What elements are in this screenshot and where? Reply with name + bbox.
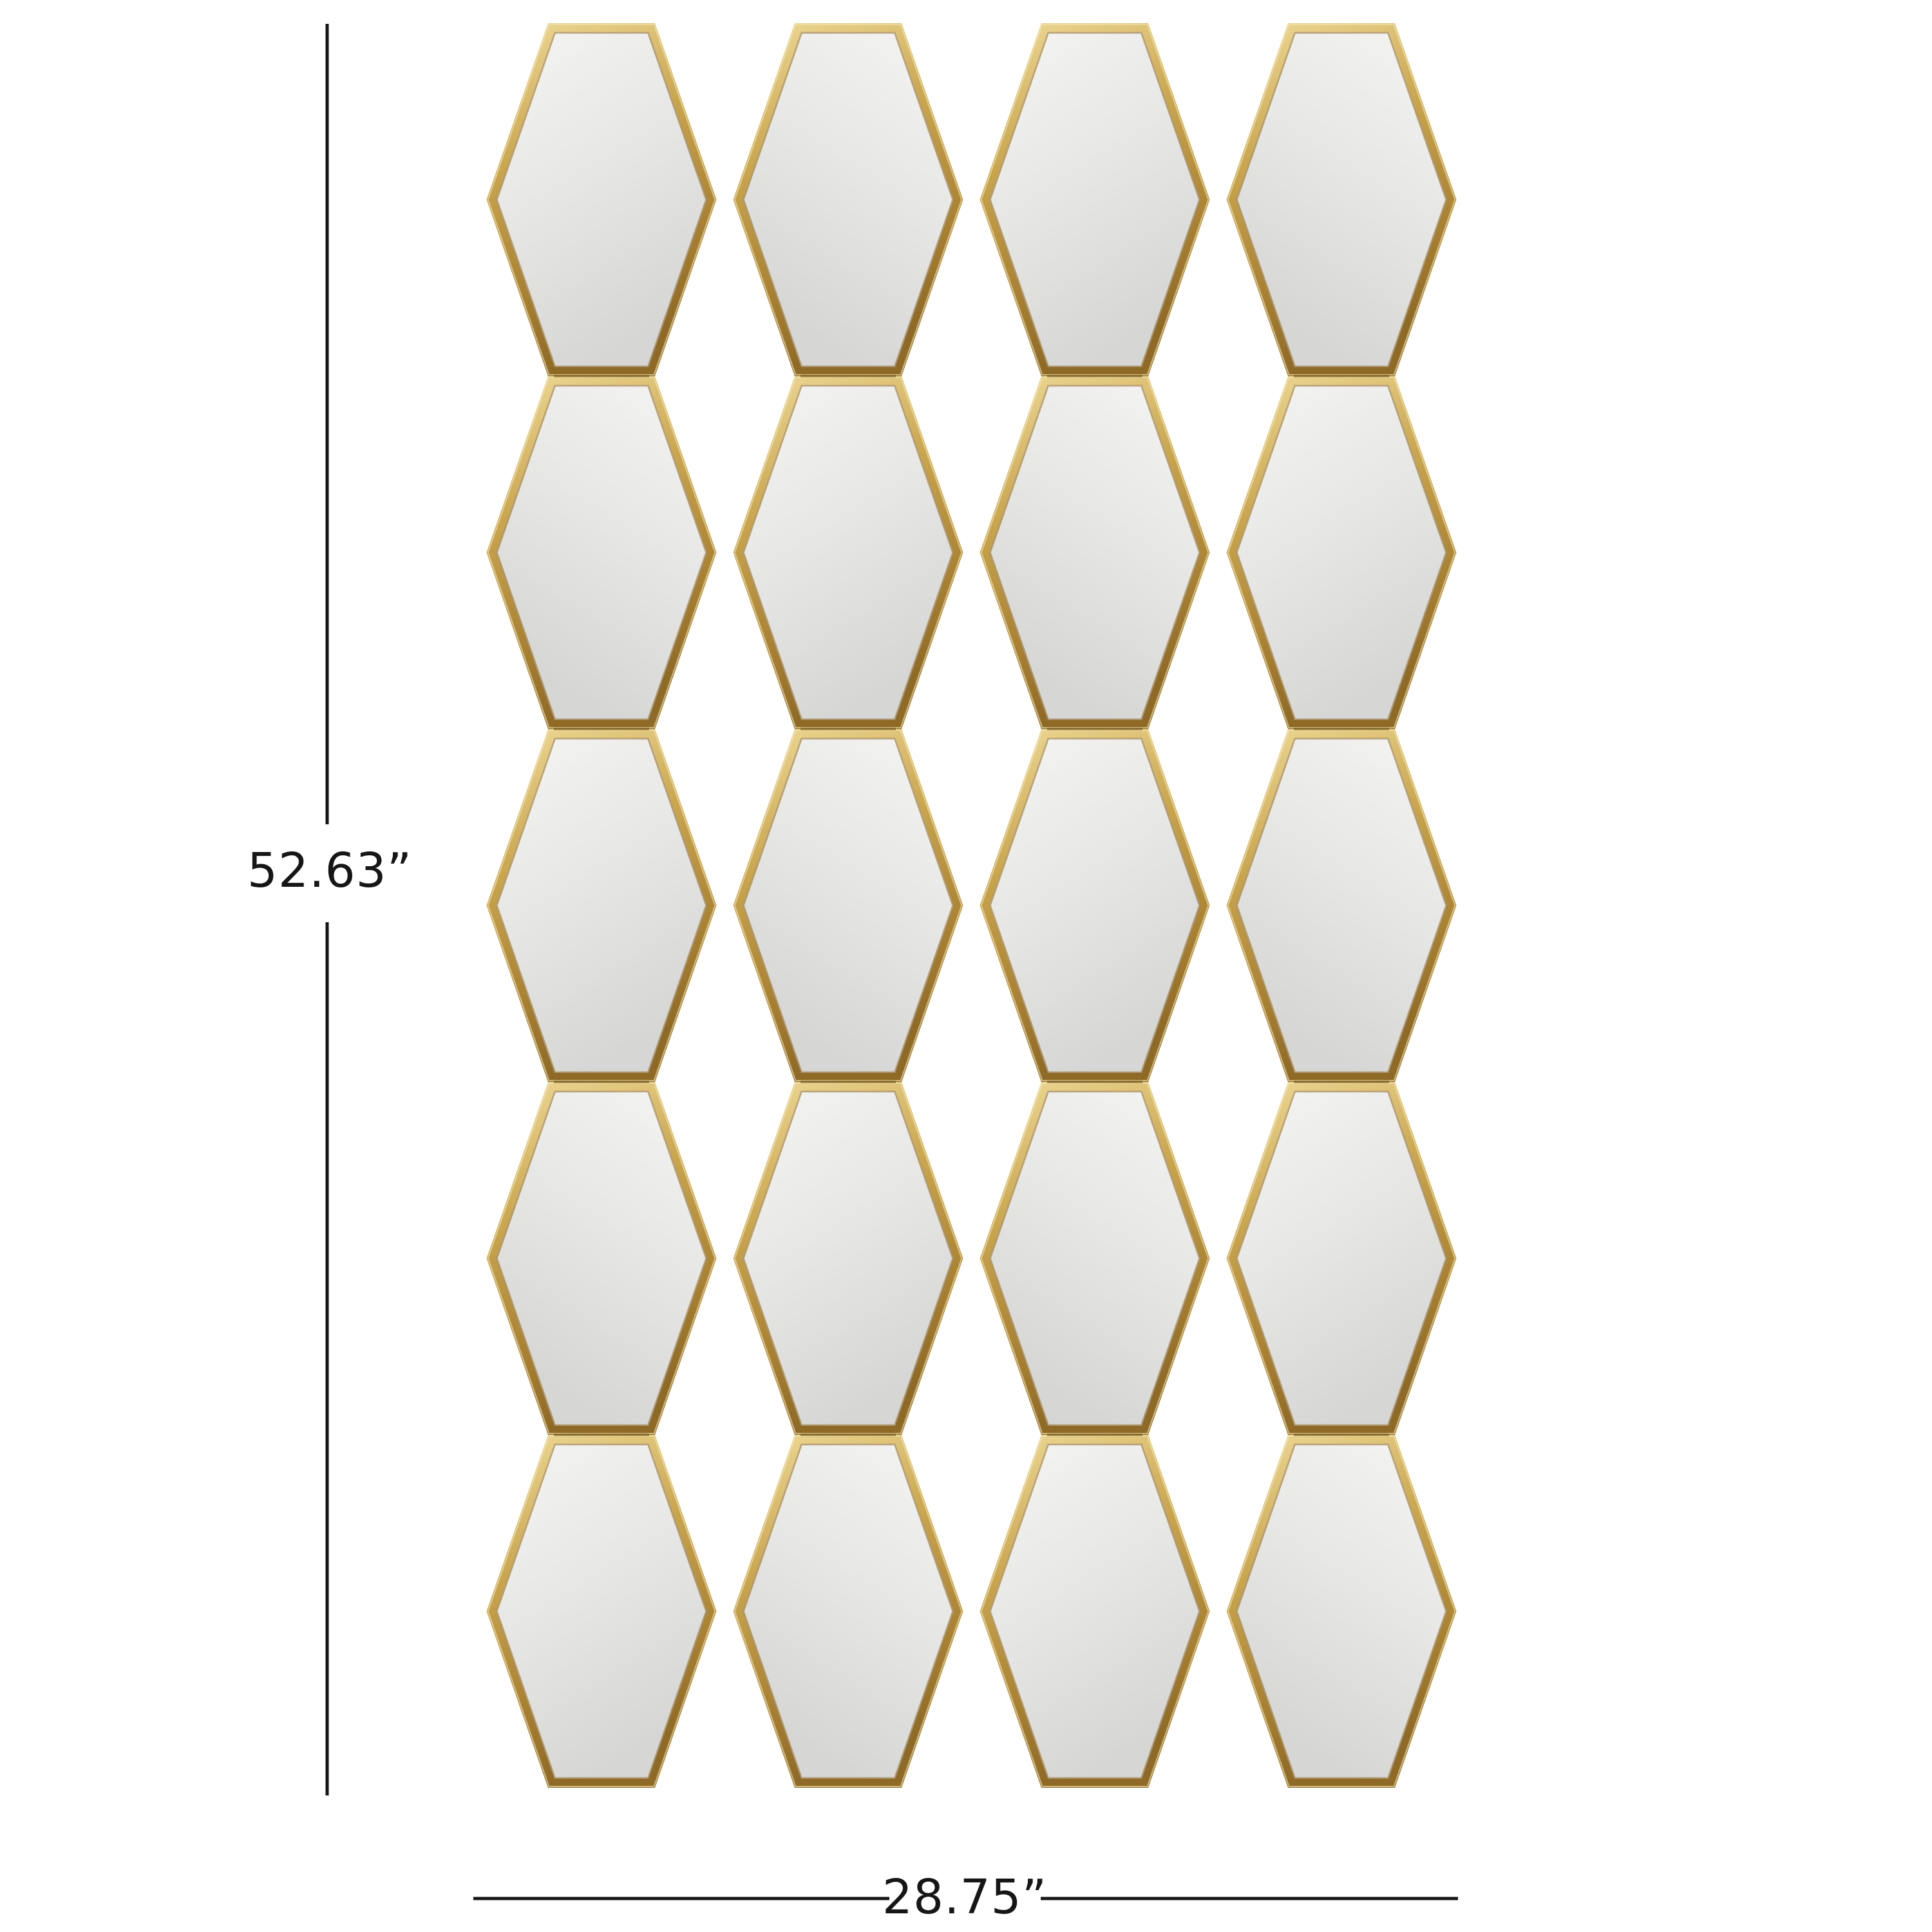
mirror-panel-graphic (0, 0, 1932, 1932)
hexagon-frame (1231, 381, 1452, 724)
hexagon-frame (491, 1086, 712, 1430)
hexagon-mirror-tile (735, 1436, 962, 1786)
hexagon-mirror-tile (488, 24, 715, 375)
hexagon-mirror-tile (488, 1436, 715, 1786)
hexagon-frame (738, 28, 958, 372)
hexagon-mirror-tile (488, 730, 715, 1081)
hexagon-mirror-tile (1228, 24, 1455, 375)
hexagon-mirror-tile (735, 1083, 962, 1434)
hexagon-frame (738, 1086, 958, 1430)
hexagon-frame (985, 28, 1205, 372)
hexagon-mirror-tile (1228, 730, 1455, 1081)
hexagon-frame (491, 381, 712, 724)
hexagon-mirror-tile (735, 377, 962, 728)
hexagon-frame (985, 381, 1205, 724)
hexagon-mirror-tile (1228, 377, 1455, 728)
hexagon-frame (1231, 1439, 1452, 1783)
width-dimension-label: 28.75” (882, 1870, 1047, 1925)
hexagon-mirror-tile (488, 1083, 715, 1434)
hexagon-mirror-tile (1228, 1436, 1455, 1786)
hexagon-frame (738, 1439, 958, 1783)
hexagon-mirror-tile (981, 730, 1209, 1081)
hexagon-frame (491, 734, 712, 1077)
hexagon-frame (1231, 1086, 1452, 1430)
hexagon-mirror-tile (488, 377, 715, 728)
hexagon-frame (985, 1086, 1205, 1430)
product-dimension-figure: 52.63” 28.75” (0, 0, 1932, 1932)
hexagon-mirror-grid (488, 24, 1455, 1786)
hexagon-mirror-tile (735, 24, 962, 375)
hexagon-frame (985, 734, 1205, 1077)
hexagon-mirror-tile (981, 377, 1209, 728)
hexagon-mirror-tile (981, 24, 1209, 375)
height-dimension-label: 52.63” (247, 843, 412, 898)
hexagon-frame (1231, 28, 1452, 372)
hexagon-frame (491, 28, 712, 372)
hexagon-frame (985, 1439, 1205, 1783)
hexagon-frame (738, 734, 958, 1077)
hexagon-mirror-tile (1228, 1083, 1455, 1434)
hexagon-frame (1231, 734, 1452, 1077)
hexagon-mirror-tile (981, 1083, 1209, 1434)
hexagon-mirror-tile (981, 1436, 1209, 1786)
hexagon-frame (738, 381, 958, 724)
hexagon-mirror-tile (735, 730, 962, 1081)
hexagon-frame (491, 1439, 712, 1783)
